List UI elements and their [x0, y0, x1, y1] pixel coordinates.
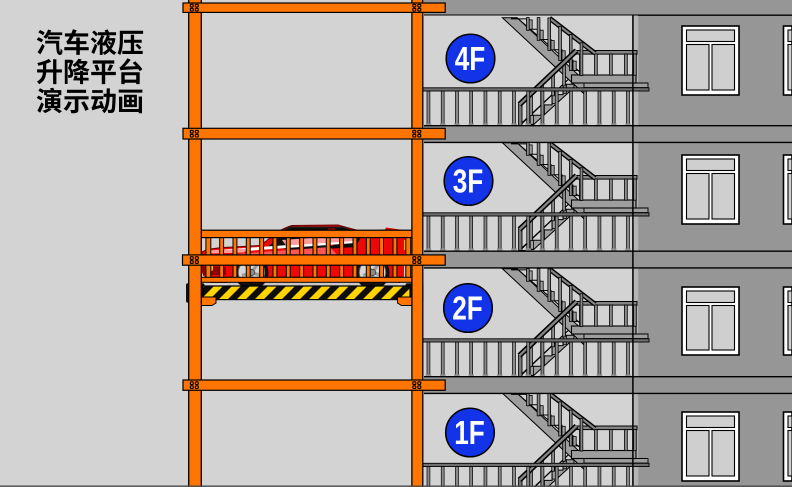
svg-text:3F: 3F [453, 163, 484, 200]
svg-text:2F: 2F [452, 290, 483, 327]
svg-text:1F: 1F [454, 414, 485, 451]
svg-text:4F: 4F [455, 40, 486, 77]
